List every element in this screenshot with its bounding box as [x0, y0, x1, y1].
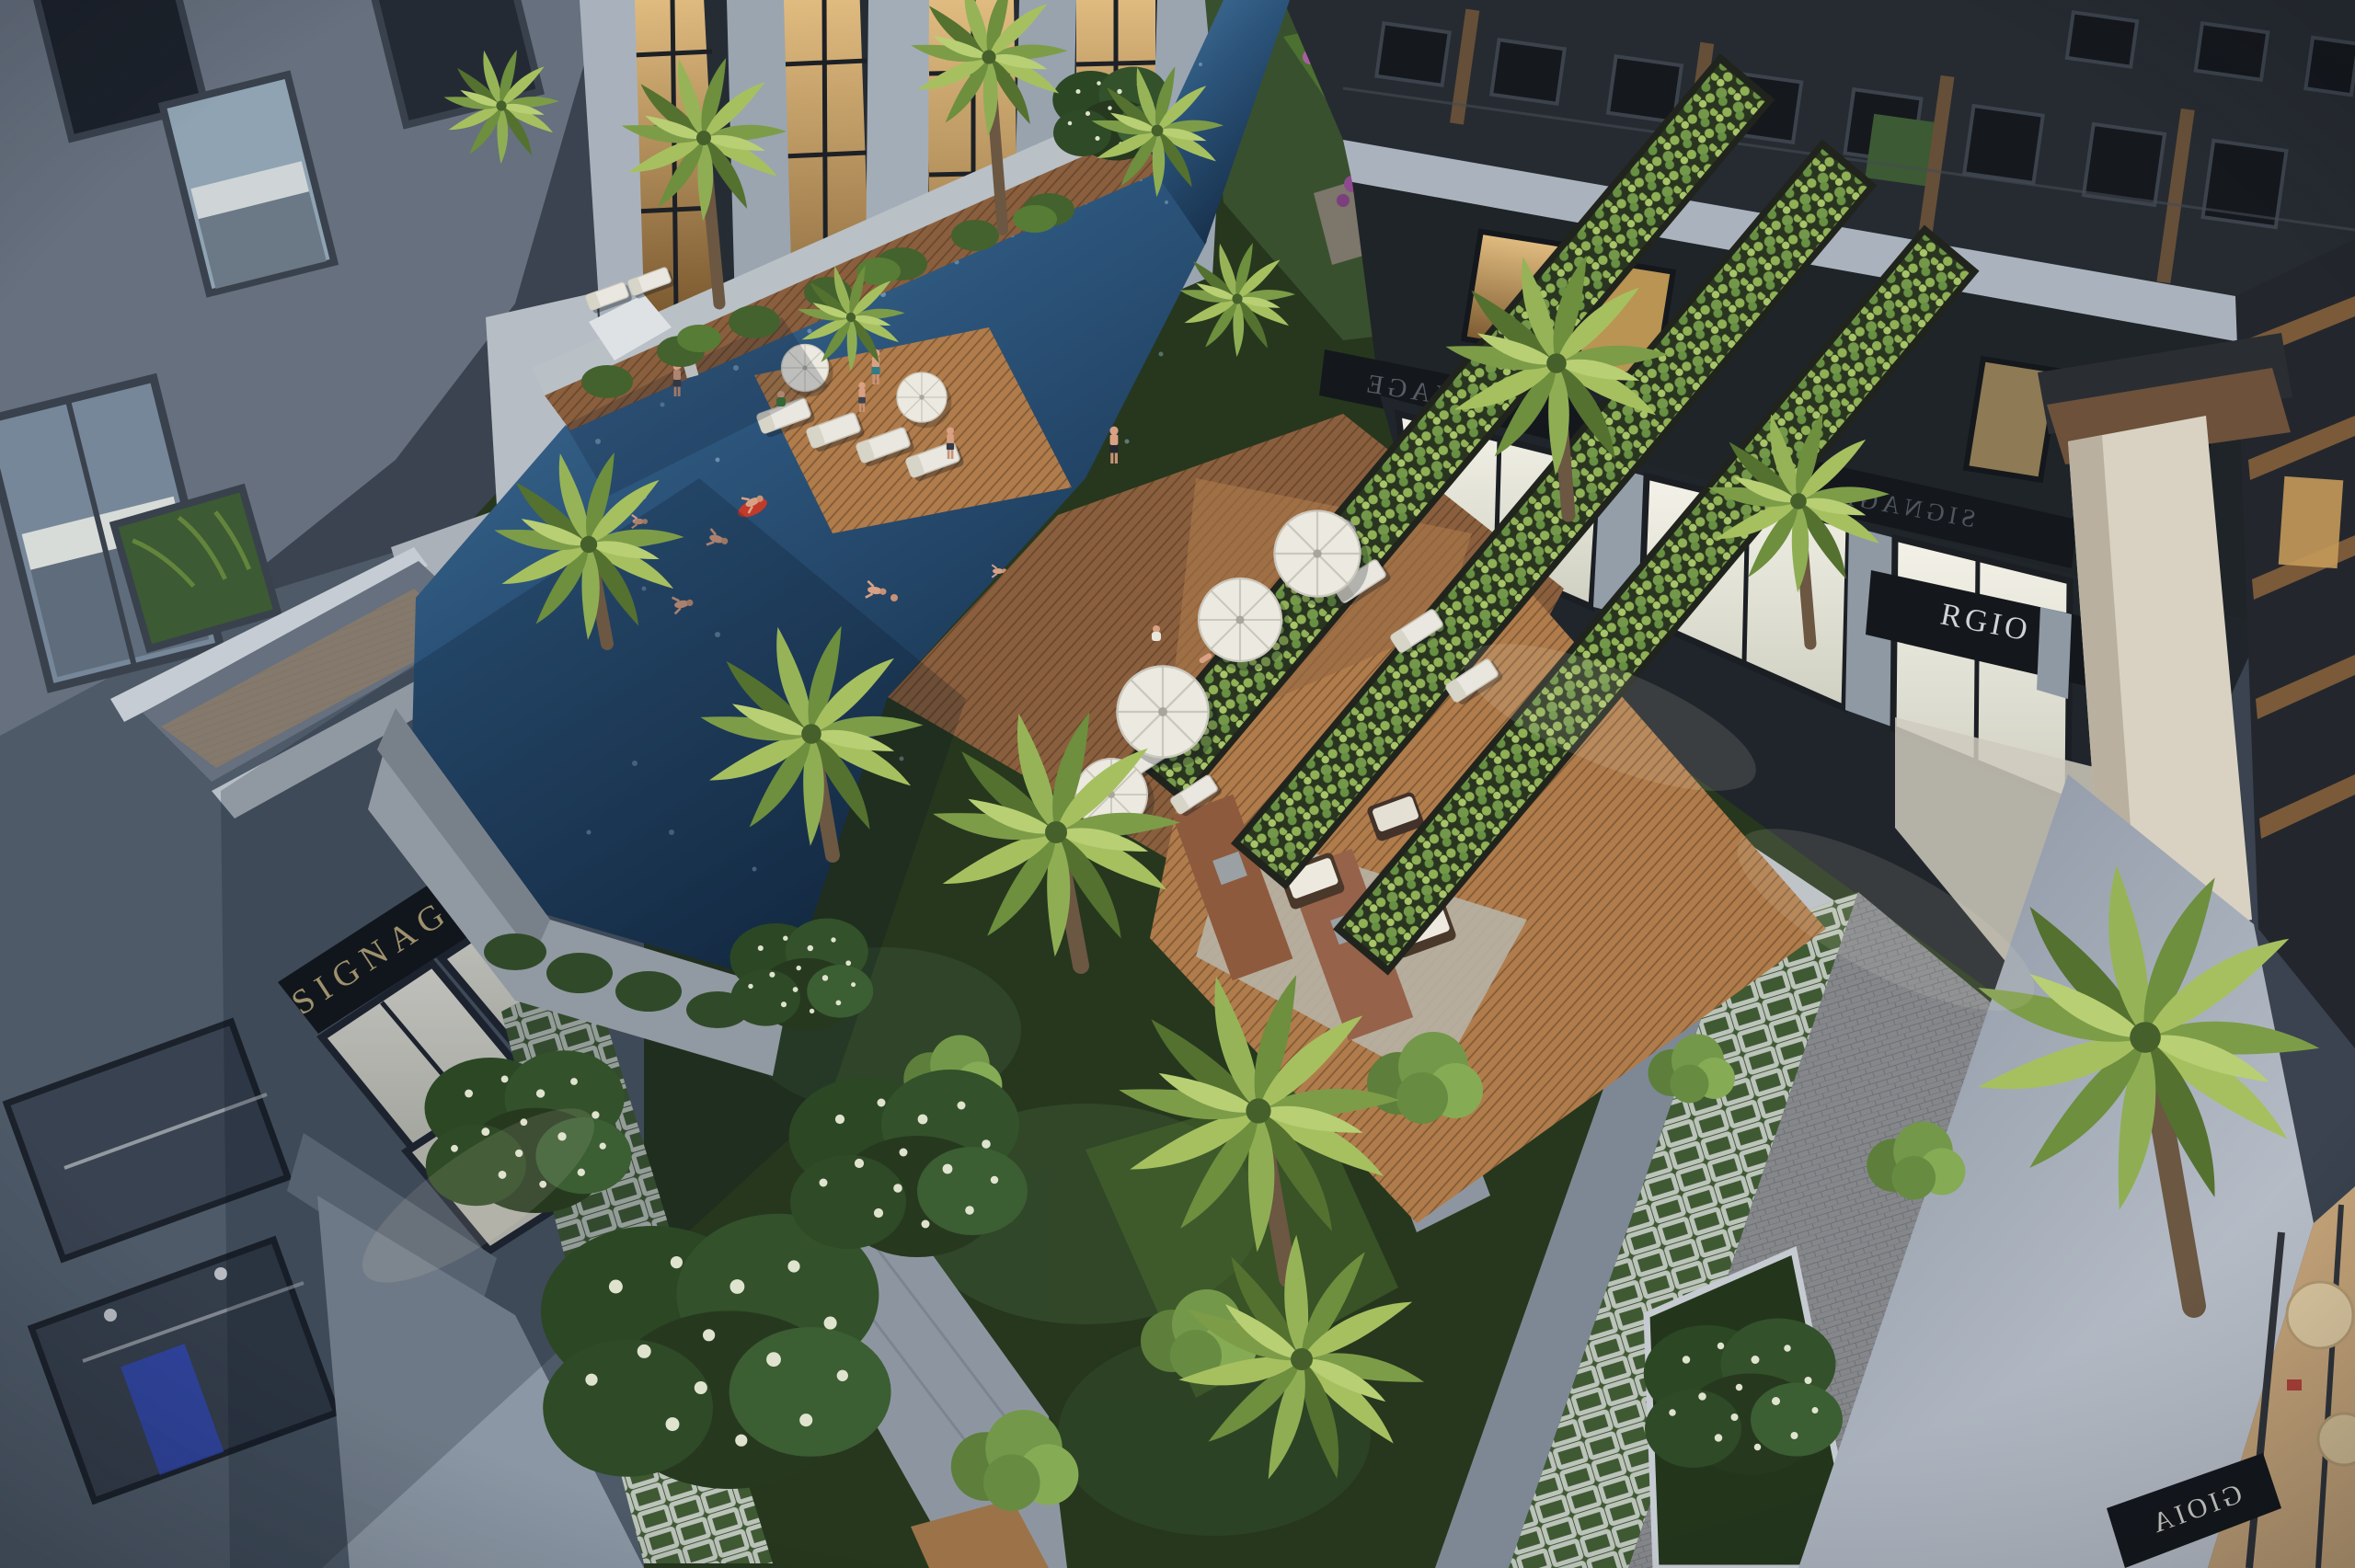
- scene-canvas: SIGNAGE: [0, 0, 2355, 1568]
- atmosphere: [0, 0, 2355, 1568]
- aerial-render: SIGNAGE: [0, 0, 2355, 1568]
- vignette: [0, 0, 2355, 1568]
